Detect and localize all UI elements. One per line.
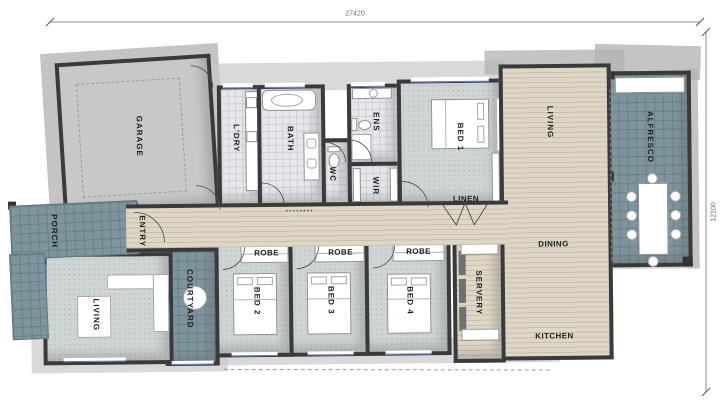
dimension-width: 27420 [345,11,364,18]
dimension-height: 12100 [711,202,718,221]
dimension-lines [0,0,720,405]
floorplan-canvas: 27420 12100 [0,0,720,405]
